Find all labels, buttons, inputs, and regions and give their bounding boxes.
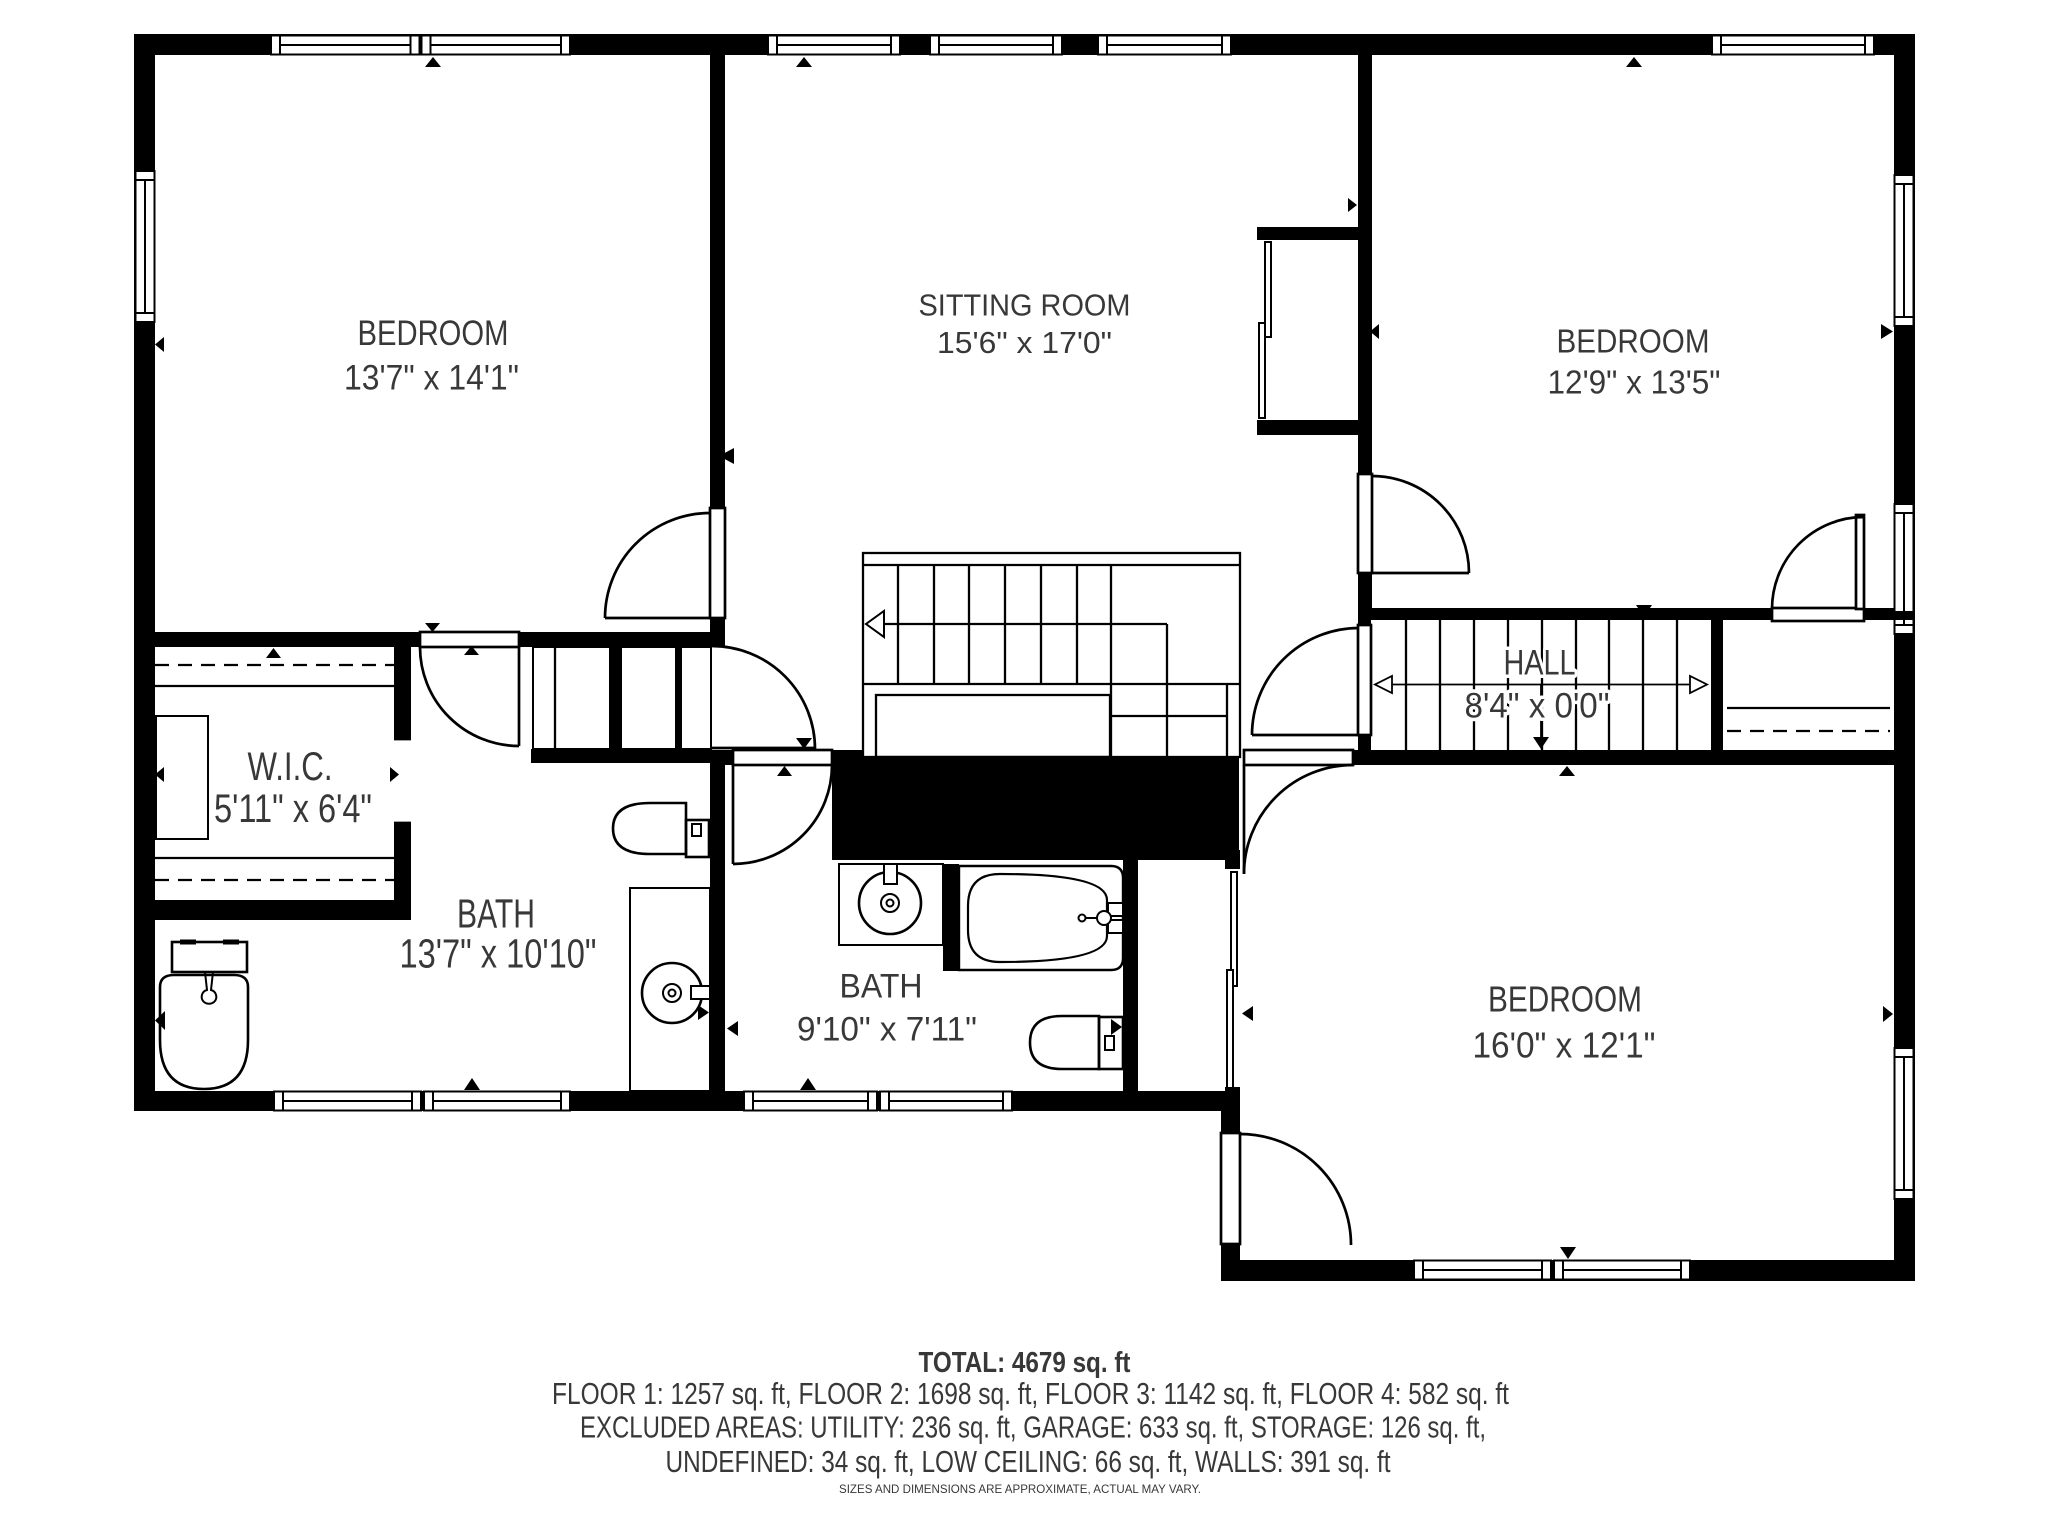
svg-text:8'4" x 0'0": 8'4" x 0'0" (1465, 687, 1610, 726)
svg-text:BEDROOM: BEDROOM (1557, 323, 1710, 360)
svg-text:13'7" x 14'1": 13'7" x 14'1" (344, 359, 519, 398)
svg-text:9'10" x 7'11": 9'10" x 7'11" (797, 1011, 977, 1049)
svg-text:EXCLUDED AREAS: UTILITY: 236 s: EXCLUDED AREAS: UTILITY: 236 sq. ft, GAR… (580, 1410, 1486, 1445)
svg-text:16'0" x 12'1": 16'0" x 12'1" (1473, 1025, 1656, 1066)
svg-text:HALL: HALL (1504, 644, 1576, 683)
svg-text:W.I.C.: W.I.C. (248, 745, 333, 789)
svg-text:BEDROOM: BEDROOM (358, 314, 509, 353)
svg-text:TOTAL: 4679 sq. ft: TOTAL: 4679 sq. ft (919, 1347, 1131, 1379)
svg-text:BATH: BATH (840, 968, 923, 1006)
svg-text:SITTING ROOM: SITTING ROOM (919, 288, 1131, 323)
svg-text:SIZES AND DIMENSIONS ARE APPRO: SIZES AND DIMENSIONS ARE APPROXIMATE, AC… (839, 1484, 1201, 1496)
svg-text:5'11" x 6'4": 5'11" x 6'4" (214, 787, 372, 831)
svg-text:13'7" x 10'10": 13'7" x 10'10" (400, 931, 597, 977)
svg-text:15'6" x 17'0": 15'6" x 17'0" (937, 325, 1112, 360)
svg-text:FLOOR 1: 1257 sq. ft, FLOOR 2:: FLOOR 1: 1257 sq. ft, FLOOR 2: 1698 sq. … (552, 1376, 1509, 1411)
svg-text:UNDEFINED: 34 sq. ft, LOW CEIL: UNDEFINED: 34 sq. ft, LOW CEILING: 66 sq… (666, 1444, 1391, 1479)
svg-text:12'9" x 13'5": 12'9" x 13'5" (1548, 364, 1721, 401)
svg-text:BEDROOM: BEDROOM (1488, 979, 1642, 1020)
